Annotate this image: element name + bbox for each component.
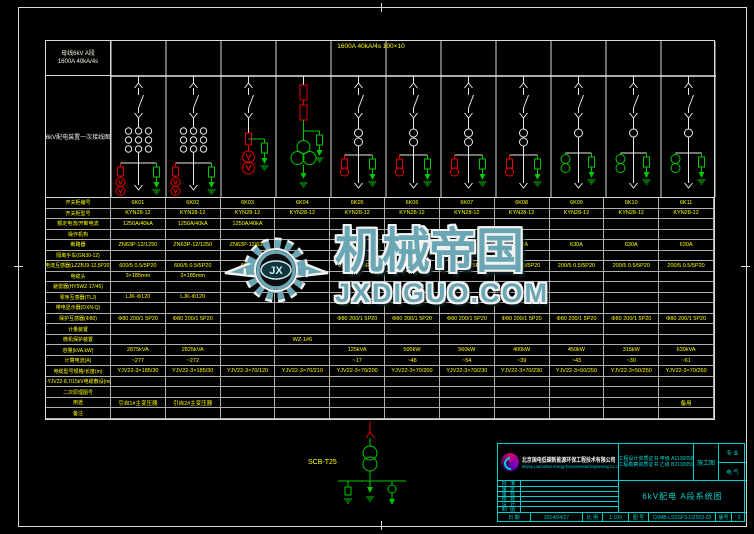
param-row-label: 微机保护装置 — [46, 335, 111, 346]
param-cell — [604, 293, 659, 304]
param-cell — [111, 303, 166, 314]
param-cell — [604, 251, 659, 262]
param-cell — [111, 377, 166, 388]
param-cell: YJV22-3×70/260 — [659, 366, 714, 377]
center-tick-right — [741, 266, 750, 267]
param-cell — [659, 230, 714, 241]
param-cell — [330, 408, 385, 419]
param-cell: KYN28-12 — [330, 209, 385, 220]
feeder-column-6K11 — [671, 76, 706, 188]
param-cell — [659, 387, 714, 398]
param-cell: LJK-Φ120 — [111, 293, 166, 304]
company-name-en: Beijing LowCarbon Energy Environmental E… — [522, 464, 619, 469]
title-block: 北京国电低碳新能源环保工程技术有限公司 Beijing LowCarbon En… — [497, 443, 745, 522]
param-cell — [221, 408, 276, 419]
param-cell — [659, 335, 714, 346]
param-cell — [440, 377, 495, 388]
param-cell — [275, 387, 330, 398]
param-row-label: 电流互感器(LZZBJ9-12,5P20) — [46, 261, 111, 272]
param-cell — [111, 324, 166, 335]
param-cell — [166, 335, 221, 346]
param-cell — [385, 324, 440, 335]
feeder-column-6K06 — [396, 76, 432, 188]
feeder-column-6K04 — [291, 76, 324, 187]
param-cell — [111, 387, 166, 398]
param-cell: LJK-Φ120 — [166, 293, 221, 304]
param-cell — [166, 324, 221, 335]
param-cell — [111, 408, 166, 419]
feeder-column-6K01 — [116, 76, 161, 196]
param-cell: KYN28-12 — [495, 209, 550, 220]
discipline-label-cell: 专 业 — [719, 444, 746, 463]
param-cell: ~54 — [440, 356, 495, 367]
param-cell — [604, 377, 659, 388]
company-cell: 北京国电低碳新能源环保工程技术有限公司 Beijing LowCarbon En… — [498, 444, 619, 481]
param-cell: ~277 — [111, 356, 166, 367]
param-cell: 6K10 — [604, 198, 659, 209]
param-cell: ~30 — [604, 356, 659, 367]
param-cell — [550, 387, 605, 398]
feeder-column-6K03 — [243, 76, 269, 174]
param-cell: ~48 — [385, 356, 440, 367]
param-cell: 630A — [604, 240, 659, 251]
param-row-label: ZR-YJV22-8.7/15kV电缆敷设(mm²) — [46, 377, 111, 388]
param-cell — [275, 314, 330, 325]
param-cell: YJV22-3×50/250 — [604, 366, 659, 377]
param-cell: YJV22-3×70/230 — [495, 366, 550, 377]
param-row-label: 备注 — [46, 408, 111, 419]
param-cell: 6K04 — [275, 198, 330, 209]
param-cell — [385, 398, 440, 409]
param-cell: ~17 — [330, 356, 385, 367]
param-cell: Φ80 200/1 5P20 — [166, 314, 221, 325]
stage-cell: 施工图 — [694, 444, 719, 481]
param-cell: KYN28-12 — [275, 209, 330, 220]
param-cell: YJV22-3×185/30 — [111, 366, 166, 377]
param-row-label: 隔离手车(GN30-12) — [46, 251, 111, 262]
param-cell — [659, 408, 714, 419]
param-cell: 6K07 — [440, 198, 495, 209]
param-cell: 6K05 — [330, 198, 385, 209]
feeder-column-6K09 — [561, 76, 596, 188]
param-cell: 2875kVA — [111, 345, 166, 356]
param-cell — [550, 219, 605, 230]
param-row-label: 断路器 — [46, 240, 111, 251]
param-cell: YJV22-3×185/30 — [166, 366, 221, 377]
param-cell: KYN28-12 — [440, 209, 495, 220]
param-cell — [440, 398, 495, 409]
param-row-label: 避雷器(HY5WZ-17/45) — [46, 282, 111, 293]
param-cell — [330, 324, 385, 335]
param-cell: ~61 — [659, 356, 714, 367]
param-cell: Φ80 200/1 5P20 — [659, 314, 714, 325]
param-cell — [604, 230, 659, 241]
param-cell — [166, 377, 221, 388]
param-cell — [550, 324, 605, 335]
param-cell — [385, 335, 440, 346]
param-cell — [550, 408, 605, 419]
param-cell — [275, 377, 330, 388]
param-cell — [111, 251, 166, 262]
param-cell — [604, 219, 659, 230]
param-cell: 引自1#主变压器 — [111, 398, 166, 409]
feeder-column-6K10 — [616, 76, 651, 188]
number-label: 图 号 — [629, 513, 649, 522]
param-cell — [221, 398, 276, 409]
param-cell — [550, 293, 605, 304]
center-tick-top — [381, 3, 382, 12]
cad-canvas: 母线6kV A段 1600A 40kA/4s 6kV配电装置一次接线图 1600… — [0, 0, 754, 534]
param-cell: Φ80 200/1 5P20 — [111, 314, 166, 325]
param-row-label: 操作机构 — [46, 230, 111, 241]
param-cell — [495, 335, 550, 346]
param-cell: 6K11 — [659, 198, 714, 209]
param-row-label: 电缆型号规格/长度(m) — [46, 366, 111, 377]
param-cell: 560kW — [440, 345, 495, 356]
param-row-label: 二次原理图号 — [46, 387, 111, 398]
param-cell — [604, 398, 659, 409]
param-cell: 450kW — [550, 345, 605, 356]
param-cell — [111, 335, 166, 346]
param-cell: Φ80 200/1 5P20 — [495, 314, 550, 325]
param-row-label: 用途 — [46, 398, 111, 409]
param-cell — [495, 408, 550, 419]
param-cell: 400kW — [495, 345, 550, 356]
param-cell: KYN28-12 — [385, 209, 440, 220]
feeder-column-6K05 — [341, 76, 377, 188]
param-cell: ~272 — [166, 356, 221, 367]
param-cell — [550, 251, 605, 262]
param-cell: YJV22-3×70/230 — [440, 366, 495, 377]
param-cell — [221, 356, 276, 367]
param-cell: KYN28-12 — [166, 209, 221, 220]
param-cell: Φ80 200/1 5P20 — [440, 314, 495, 325]
param-cell — [495, 398, 550, 409]
param-cell — [275, 398, 330, 409]
param-cell: WZ-1#6 — [275, 335, 330, 346]
param-row-label: 带电显示器(DXN-Q) — [46, 303, 111, 314]
param-cell — [111, 282, 166, 293]
param-cell: 630A — [659, 240, 714, 251]
param-cell — [221, 314, 276, 325]
param-cell — [440, 335, 495, 346]
param-cell — [111, 230, 166, 241]
param-row-label: 电缆头 — [46, 272, 111, 283]
param-cell: 1250A/40kA — [166, 219, 221, 230]
drawing-number: C6MB-LSSSFS-DZ503-03 — [649, 513, 716, 522]
certificates-cell: 工程设计资质证书 甲级 A1130058 工程勘察资质证书 乙级 B213005… — [619, 444, 694, 481]
param-row-label: 容量(kVA,kW) — [46, 345, 111, 356]
param-cell — [550, 303, 605, 314]
param-cell — [275, 408, 330, 419]
rev-label: 版号 — [716, 513, 732, 522]
param-cell — [659, 272, 714, 283]
param-cell: 3×185mm — [166, 272, 221, 283]
param-cell — [659, 251, 714, 262]
param-cell: KYN28-12 — [111, 209, 166, 220]
param-cell: KYN28-12 — [604, 209, 659, 220]
param-cell — [550, 335, 605, 346]
param-cell: Φ80 200/1 5P20 — [330, 314, 385, 325]
param-cell — [385, 377, 440, 388]
param-row-label: 计算电流(A) — [46, 356, 111, 367]
param-cell: 6K06 — [385, 198, 440, 209]
param-cell — [275, 345, 330, 356]
winged-gear-logo-icon: JX — [224, 226, 329, 314]
param-cell: 6K02 — [166, 198, 221, 209]
param-cell: YJV22-3×70/120 — [221, 366, 276, 377]
param-cell — [550, 282, 605, 293]
param-cell: 6K08 — [495, 198, 550, 209]
param-cell: ZN63P-12/1250 — [111, 240, 166, 251]
param-cell — [440, 387, 495, 398]
param-cell — [550, 230, 605, 241]
company-logo-icon — [501, 453, 519, 471]
param-cell: 3×185mm — [111, 272, 166, 283]
param-cell — [659, 324, 714, 335]
rev-value: 0 — [732, 513, 746, 522]
param-cell: KYN28-12 — [659, 209, 714, 220]
param-row-label: 开关柜型号 — [46, 209, 111, 220]
param-cell — [659, 282, 714, 293]
param-cell — [221, 345, 276, 356]
bus-spec-line2: 1600A 40kA/4s — [58, 58, 98, 66]
station-transformer-detail: SCB-T25 — [300, 421, 460, 509]
param-cell — [221, 377, 276, 388]
schematic-svg — [111, 41, 716, 197]
feeder-column-6K02 — [171, 76, 216, 196]
param-cell: 备用 — [659, 398, 714, 409]
param-row-label: 零序互感器(TLJ) — [46, 293, 111, 304]
param-cell — [604, 282, 659, 293]
param-cell — [604, 324, 659, 335]
param-cell: Φ80 200/1 5P20 — [604, 314, 659, 325]
param-cell: YJV22-3×70/200 — [385, 366, 440, 377]
bus-spec-box: 母线6kV A段 1600A 40kA/4s — [46, 41, 111, 76]
scale-label: 比 例 — [583, 513, 603, 522]
param-cell — [495, 324, 550, 335]
param-cell — [166, 303, 221, 314]
param-cell — [495, 387, 550, 398]
watermark-monogram: JX — [269, 265, 283, 277]
param-cell — [275, 324, 330, 335]
param-cell — [330, 398, 385, 409]
param-cell: 200/5 0.5/5P20 — [604, 261, 659, 272]
scale-value: 1:100 — [603, 513, 629, 522]
feeder-column-6K07 — [451, 76, 487, 188]
param-cell — [659, 303, 714, 314]
param-cell: ~39 — [495, 356, 550, 367]
param-cell: Φ80 200/1 5P20 — [550, 314, 605, 325]
param-cell: KYN28-12 — [550, 209, 605, 220]
param-row-label: 保护互感器(Φ80) — [46, 314, 111, 325]
center-tick-left — [14, 266, 23, 267]
param-row-label: 计量装置 — [46, 324, 111, 335]
param-row-label: 额定电流/开断电流 — [46, 219, 111, 230]
param-row-label: 开关柜编号 — [46, 198, 111, 209]
param-cell — [604, 408, 659, 419]
param-cell — [659, 293, 714, 304]
param-cell — [330, 377, 385, 388]
param-cell — [659, 219, 714, 230]
param-cell — [166, 282, 221, 293]
watermark: JX 机械帝国 JXDIGUO.COM — [224, 226, 549, 314]
param-cell: 6K09 — [550, 198, 605, 209]
param-cell: 200/5 0.5/5P20 — [550, 261, 605, 272]
param-cell — [166, 387, 221, 398]
bus-rating-label: 1600A 40kA/4s 100×10 — [301, 43, 441, 50]
param-cell — [385, 387, 440, 398]
param-cell — [604, 272, 659, 283]
param-cell — [221, 387, 276, 398]
param-cell: ~43 — [550, 356, 605, 367]
param-cell: 200/5 0.5/5P20 — [659, 261, 714, 272]
param-cell — [550, 272, 605, 283]
param-cell: 600/5 0.5/5P20 — [166, 261, 221, 272]
param-cell — [221, 335, 276, 346]
watermark-domain-text: JXDIGUO.COM — [335, 278, 549, 308]
param-cell: ZN63P-12/1250 — [166, 240, 221, 251]
param-cell — [385, 408, 440, 419]
param-cell — [440, 408, 495, 419]
param-cell — [166, 251, 221, 262]
param-cell: 引自2#主变压器 — [166, 398, 221, 409]
param-cell — [275, 356, 330, 367]
date-label: 日 期 — [498, 513, 531, 522]
center-tick-bottom — [381, 521, 382, 530]
param-cell: 630A — [550, 240, 605, 251]
watermark-cn-text: 机械帝国 — [335, 226, 549, 278]
feeder-column-6K08 — [506, 76, 542, 188]
param-cell — [330, 387, 385, 398]
drawing-title: 6kV配电 A段系统图 — [619, 481, 746, 513]
param-cell: YJV22-3×50/250 — [550, 366, 605, 377]
param-cell — [440, 324, 495, 335]
param-cell — [659, 377, 714, 388]
bus-spec-line1: 母线6kV A段 — [61, 50, 95, 58]
param-cell: 2825kVA — [166, 345, 221, 356]
param-cell — [604, 303, 659, 314]
param-cell: 6K01 — [111, 198, 166, 209]
param-cell: YJV22-3×70/210 — [275, 366, 330, 377]
param-cell — [330, 335, 385, 346]
param-cell: KYN28-12 — [221, 209, 276, 220]
param-cell — [166, 230, 221, 241]
param-cell — [166, 408, 221, 419]
param-cell — [221, 324, 276, 335]
param-cell — [604, 335, 659, 346]
date-value: 2014/04/27 — [531, 513, 583, 522]
param-cell: 600/5 0.5/5P20 — [111, 261, 166, 272]
company-name-cn: 北京国电低碳新能源环保工程技术有限公司 — [522, 455, 615, 464]
discipline-value-cell: 电 气 — [719, 463, 746, 481]
param-cell: 630kVA — [659, 345, 714, 356]
param-cell: 500kW — [385, 345, 440, 356]
param-cell — [550, 377, 605, 388]
param-cell: YJV22-3×70/200 — [330, 366, 385, 377]
param-cell: 125kVA — [330, 345, 385, 356]
transformer-model-label: SCB-T25 — [308, 459, 337, 466]
param-cell: 6K03 — [221, 198, 276, 209]
param-cell: 1250A/40kA — [111, 219, 166, 230]
diagram-title: 6kV配电装置一次接线图 — [46, 76, 111, 197]
param-cell: Φ80 200/1 5P20 — [385, 314, 440, 325]
param-cell — [550, 398, 605, 409]
param-cell — [495, 377, 550, 388]
param-cell — [604, 387, 659, 398]
param-cell: 315kW — [604, 345, 659, 356]
